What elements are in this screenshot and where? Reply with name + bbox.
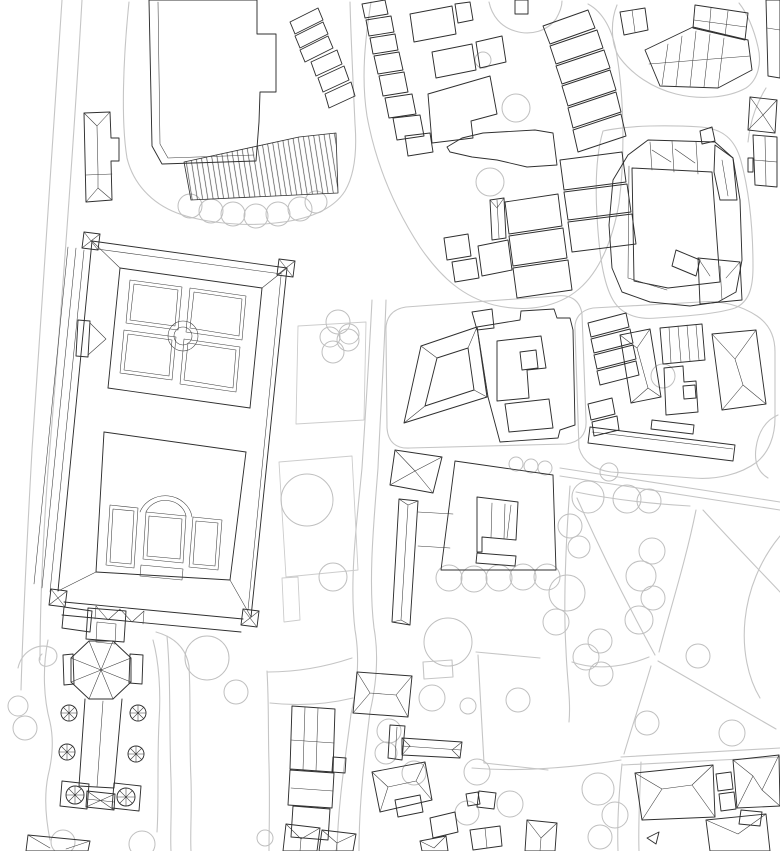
- site-plan-map: [0, 0, 780, 851]
- map-background: [0, 0, 780, 851]
- map-canvas: [0, 0, 780, 851]
